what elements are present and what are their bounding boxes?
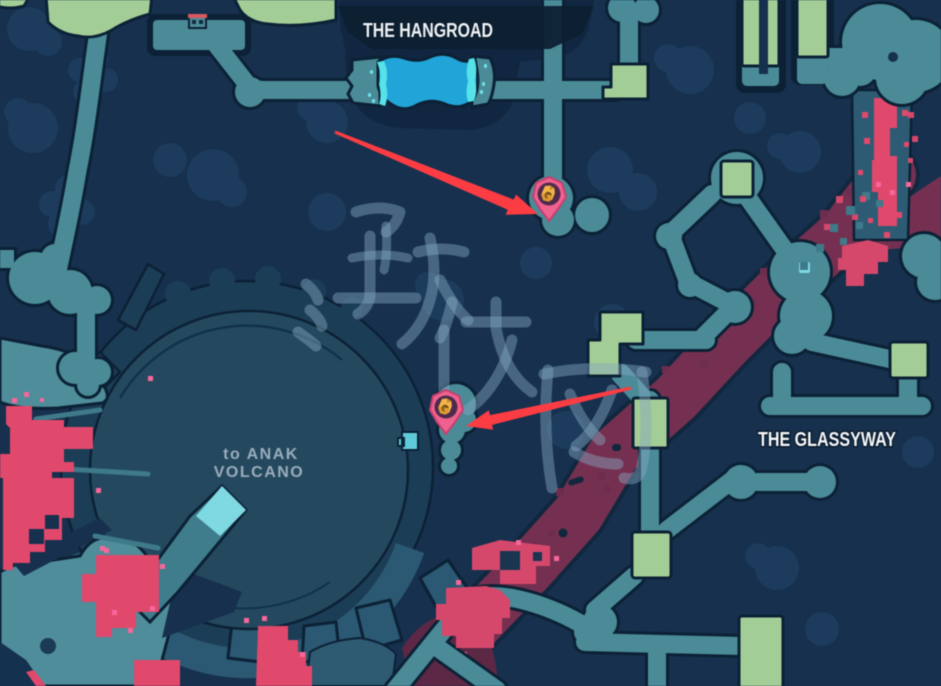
svg-text:VOLCANO: VOLCANO — [214, 464, 305, 481]
svg-text:THE HANGROAD: THE HANGROAD — [363, 20, 493, 42]
svg-text:THE GLASSYWAY: THE GLASSYWAY — [758, 429, 897, 451]
svg-text:to ANAK: to ANAK — [223, 446, 299, 463]
